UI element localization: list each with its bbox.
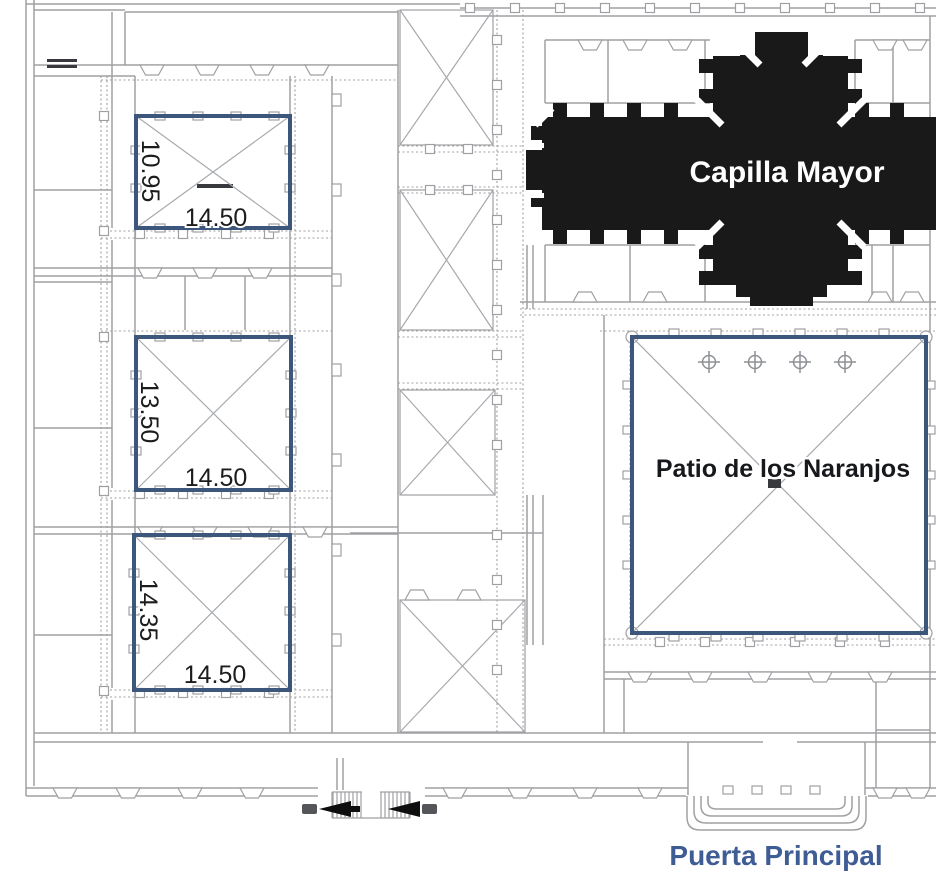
patio-label: Patio de los Naranjos [656, 455, 910, 483]
courtyard-lower-width-dimension: 14.50 [184, 661, 247, 689]
courtyard-lower-height-dimension: 14.35 [134, 579, 162, 642]
courtyard-middle: 13.50 14.50 [131, 333, 296, 494]
light-crossed-rooms [400, 10, 525, 732]
courtyard-upper: 10.95 14.50 [131, 112, 295, 232]
wall-pilasters [332, 94, 341, 646]
left-arrow-icon [319, 801, 351, 817]
courtyard-middle-width-dimension: 14.50 [185, 464, 248, 492]
courtyard-upper-height-dimension: 10.95 [136, 140, 164, 203]
courtyard-upper-width-dimension: 14.50 [185, 204, 248, 232]
puerta-principal-label: Puerta Principal [669, 840, 882, 871]
floor-plan: Capilla Mayor 10.95 14.50 13.50 14.50 14… [0, 0, 936, 896]
side-entrance [302, 792, 437, 818]
orange-tree-symbols [698, 351, 856, 373]
capilla-mayor: Capilla Mayor [526, 32, 936, 306]
patio-de-los-naranjos: Patio de los Naranjos [623, 329, 935, 641]
main-entrance: Puerta Principal [669, 786, 882, 871]
capilla-mayor-label: Capilla Mayor [689, 156, 884, 189]
entrance-pad-right [422, 804, 437, 814]
entrance-steps [687, 796, 866, 830]
courtyard-middle-height-dimension: 13.50 [135, 381, 163, 444]
entrance-pad-left [302, 804, 317, 814]
courtyard-lower: 14.35 14.50 [129, 531, 295, 694]
